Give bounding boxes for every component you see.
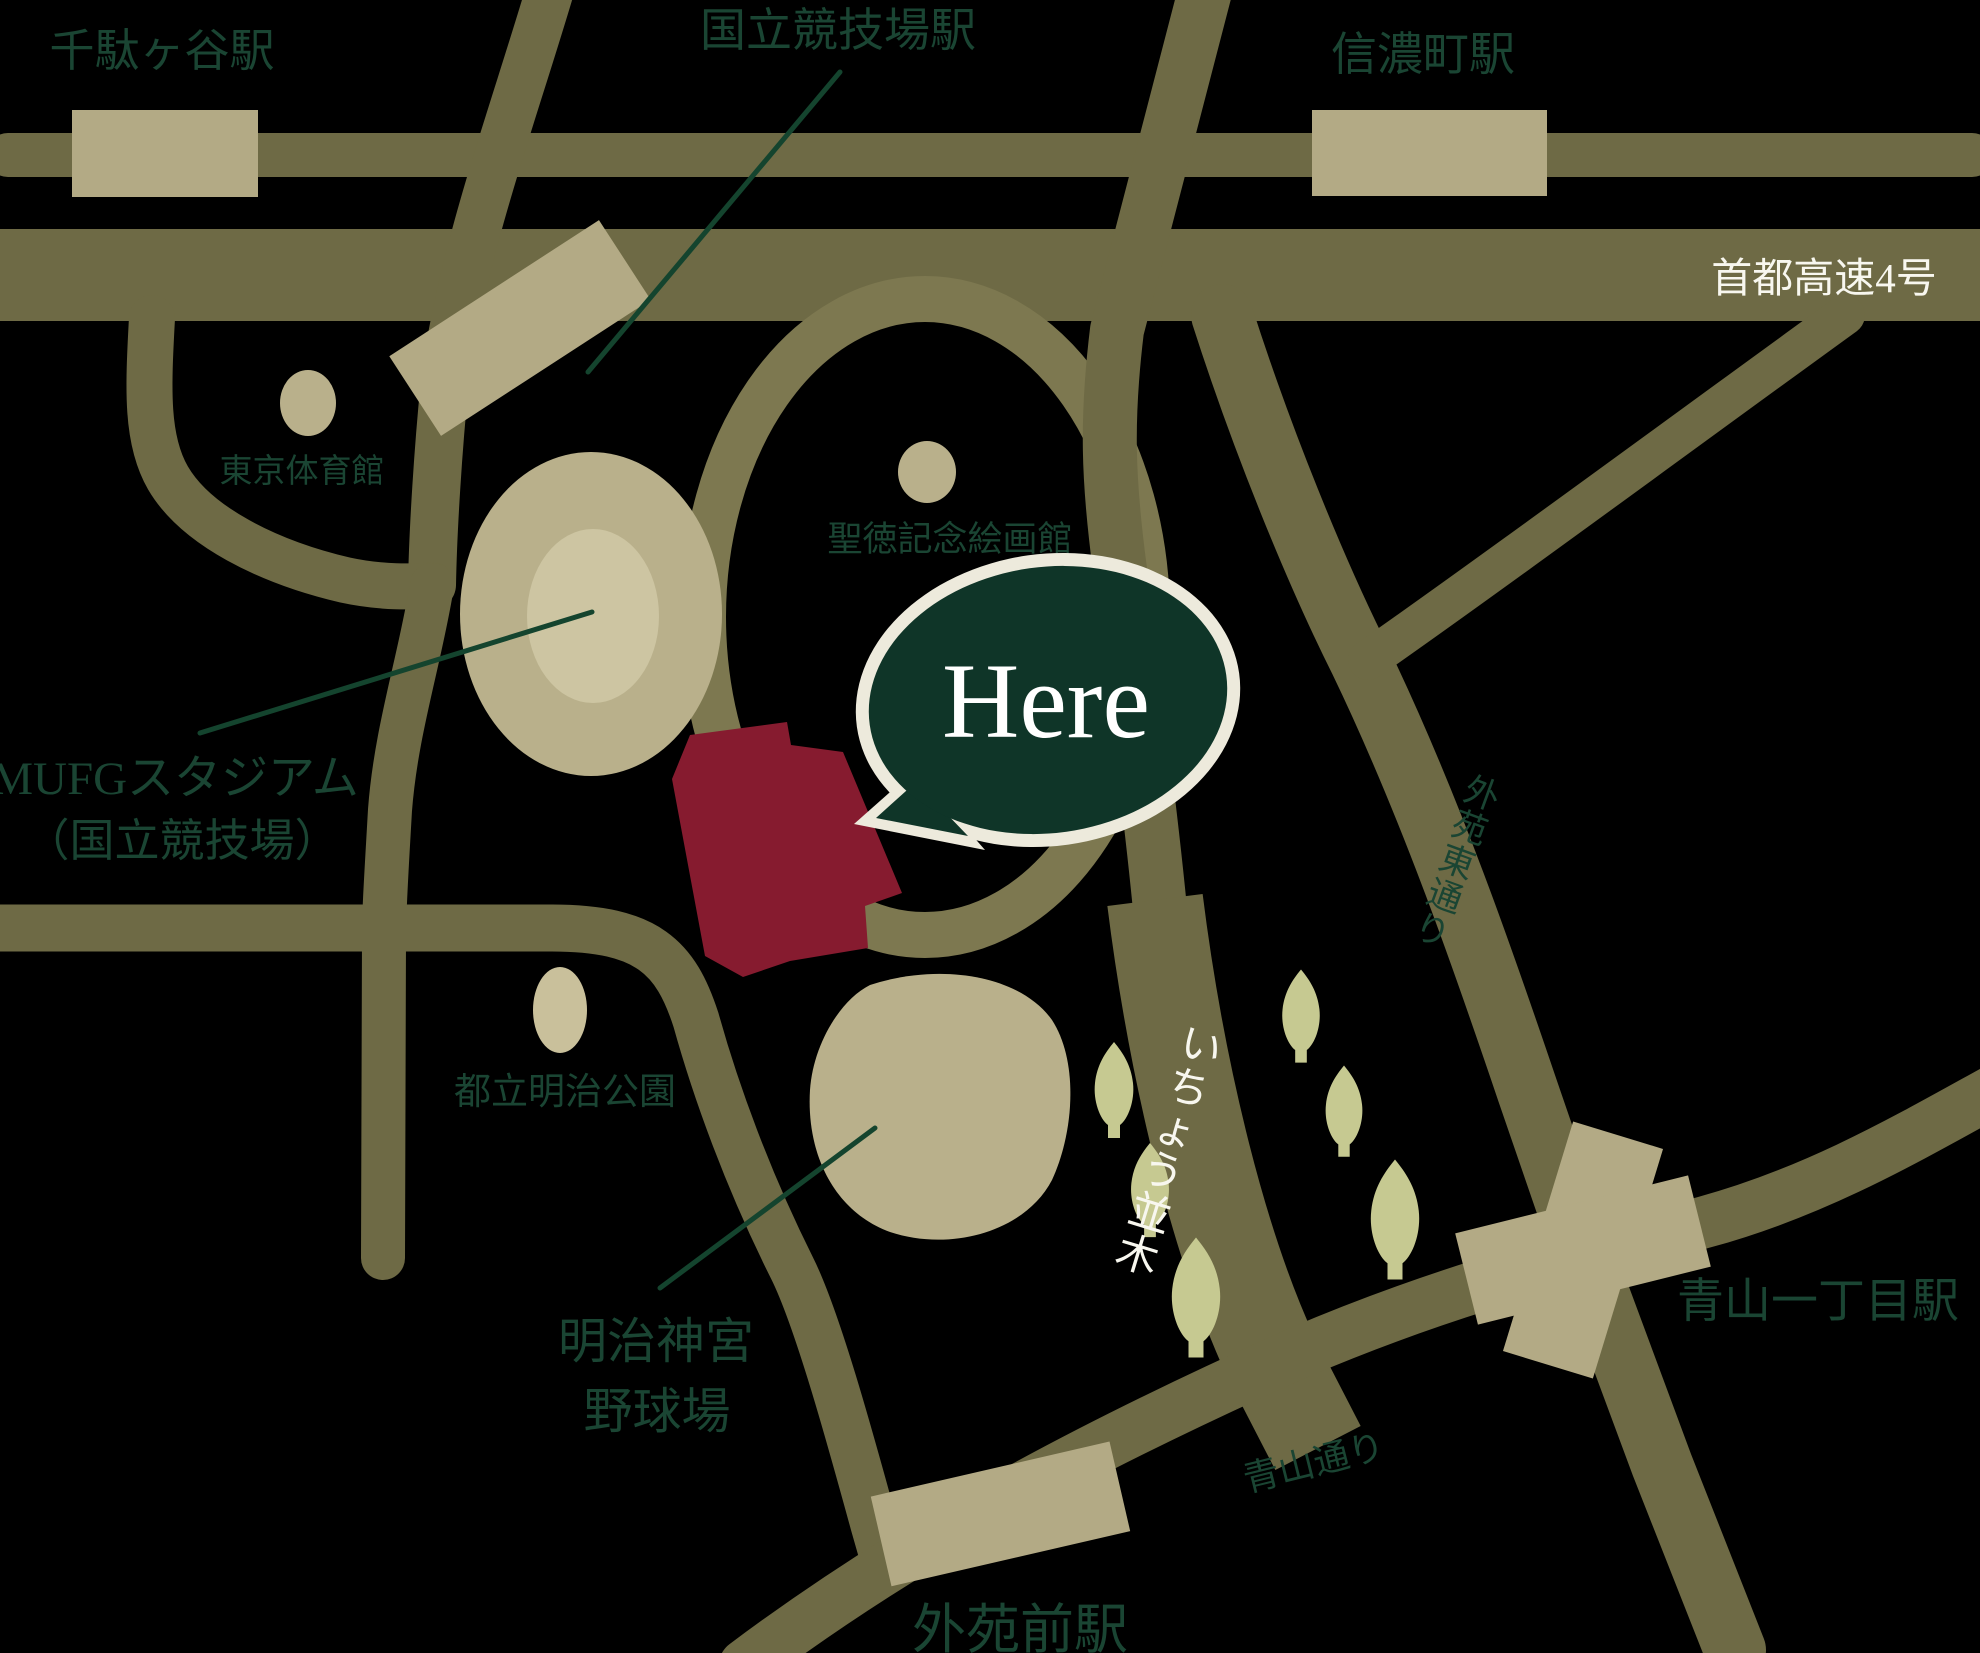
here-marker-label: Here [942, 643, 1150, 761]
tree-icon [1095, 1042, 1134, 1138]
meiji-park-dot [533, 967, 587, 1053]
meiji-park-label: 都立明治公園 [454, 1071, 676, 1113]
mufg-stadium-label-line2: （国立競技場） [24, 816, 339, 866]
seitoku-gallery-dot [898, 441, 956, 503]
seitoku-gallery-label: 聖徳記念絵画館 [827, 520, 1072, 559]
tokyo-gymnasium-label: 東京体育館 [220, 453, 385, 490]
sendagaya-station-label: 千駄ヶ谷駅 [49, 26, 274, 76]
road-to-gaienmae [0, 928, 884, 1560]
tokyo-gymnasium-dot [280, 370, 336, 436]
aoyama-itchome-station-shape [1455, 1122, 1711, 1379]
shuto-expressway-label: 首都高速4号 [1711, 255, 1937, 301]
sendagaya-station-shape [72, 110, 258, 197]
here-marker: Here [837, 529, 1260, 872]
tree-icon [1282, 970, 1320, 1063]
jingu-baseball-label-line1: 明治神宮 [558, 1314, 754, 1369]
jingu-baseball-label-line2: 野球場 [583, 1384, 730, 1439]
aoyama-itchome-station-label: 青山一丁目駅 [1677, 1276, 1959, 1328]
road-ramp [1368, 315, 1845, 660]
tree-icon [1326, 1066, 1363, 1157]
tree-icon [1371, 1160, 1419, 1280]
mufg-stadium-label-line1: MUFGスタジアム [0, 753, 359, 805]
gaienmae-station-shape [871, 1442, 1130, 1587]
map-canvas: 千駄ヶ谷駅 国立競技場駅 信濃町駅 首都高速4号 東京体育館 聖徳記念絵画館 M… [0, 0, 1980, 1653]
road-gymnasium-loop [149, 318, 432, 586]
shinanomachi-station-shape [1312, 110, 1547, 196]
access-map: 千駄ヶ谷駅 国立競技場駅 信濃町駅 首都高速4号 東京体育館 聖徳記念絵画館 M… [0, 0, 1980, 1653]
shinanomachi-station-label: 信濃町駅 [1331, 29, 1515, 80]
gaienmae-station-label: 外苑前駅 [912, 1600, 1128, 1653]
stadium-oval-inner [527, 529, 659, 703]
kokuritsu-kyogijo-station-label: 国立競技場駅 [700, 5, 976, 56]
jingu-baseball-shape [810, 974, 1071, 1240]
